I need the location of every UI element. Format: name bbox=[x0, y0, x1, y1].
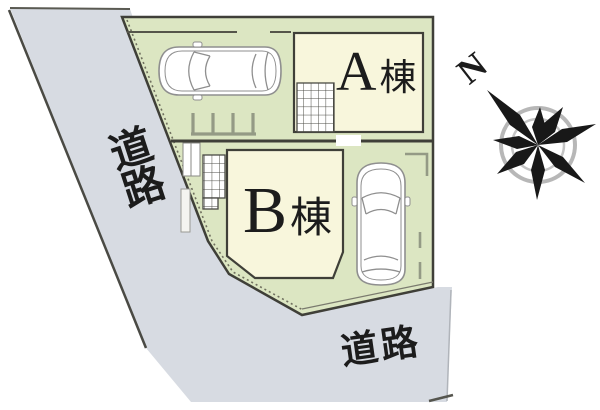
building-a-suffix: 棟 bbox=[379, 60, 416, 97]
building-a-letter: A bbox=[336, 44, 376, 100]
building-b-letter: B bbox=[243, 178, 287, 244]
car-top-view-icon-2 bbox=[352, 163, 410, 285]
entrance-tile-grid-a bbox=[297, 83, 334, 132]
compass-rose-icon bbox=[487, 90, 596, 200]
building-a-label: A 棟 bbox=[336, 44, 416, 100]
building-b-label: B 棟 bbox=[243, 178, 332, 244]
building-b-suffix: 棟 bbox=[290, 198, 332, 240]
site-plan: 道路 道路 A 棟 B 棟 N bbox=[0, 0, 600, 410]
car-top-view-icon-1 bbox=[159, 42, 281, 100]
